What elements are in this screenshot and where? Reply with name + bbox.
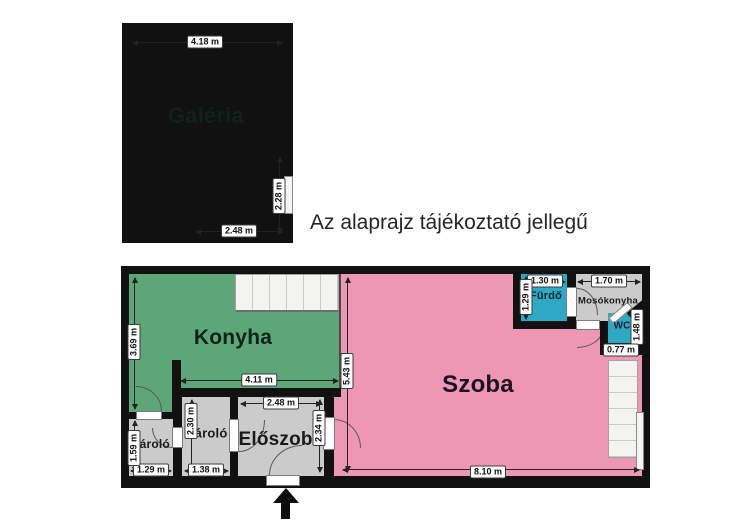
door-furdo-mosokonyha [566,287,577,317]
gallery-inner-wall-horizontal [187,147,293,155]
szoba-window [636,412,644,470]
dim-kitchen-width-label: 4.11 m [241,374,277,387]
dim-storage2-height-label: 2.30 m [185,403,198,439]
dim-room-width-label: 8.10 m [470,466,506,479]
wall-konyha-bottom [172,388,341,397]
wc-label: WC [613,321,630,332]
gallery-inner-wall-stub [187,210,195,235]
floorplan-canvas: 4.18 m 2.28 m 2.48 m Galéria Az alaprajz… [0,0,730,524]
szoba-stairs [608,360,638,458]
gallery-inner-wall-vertical [187,147,195,182]
dim-kitchen-height-label: 3.69 m [128,324,141,360]
szoba-label: Szoba [442,371,514,399]
gallery-outer-wall [122,23,293,243]
gallery-room-label: Galéria [168,103,244,129]
gallery-dim-top-label: 4.18 m [187,36,223,49]
dim-storage2-width-label: 1.38 m [188,464,224,477]
wall-konyha-stub [172,360,181,388]
dim-bath-height-label: 1.29 m [520,279,533,315]
dim-hall-width-label: 2.48 m [263,397,299,410]
konyha-stairs [235,274,339,312]
konyha-label: Konyha [194,326,272,350]
entrance-arrow-icon [273,488,299,503]
dim-wc-width-label: 0.77 m [603,344,639,357]
dim-hall-height-label: 2.34 m [313,410,326,446]
wall-furdo-bottom [513,321,576,329]
dim-laundry-width-label: 1.70 m [591,275,627,288]
dim-wc-height-label: 1.48 m [631,309,644,345]
gallery-dim-right-label: 2.28 m [273,178,286,214]
mosokonyha-label: Mosókonyha [578,296,638,307]
entrance-arrow-shaft [281,502,290,519]
door-entrance [266,475,300,486]
disclaimer-note: Az alaprajz tájékoztató jellegű [310,211,588,235]
door-mosokonyha-szoba [576,320,600,330]
furdo-label: Fürdő [530,290,562,302]
gallery-dim-bottom-label: 2.48 m [221,225,257,238]
dim-room-height-label: 5.43 m [341,353,354,389]
eloszoba-label: Előszoba [238,429,323,451]
door-tarolo1-tarolo2 [172,427,183,448]
door-konyha-tarolo1 [136,411,162,420]
dim-storage1-height-label: 1.59 m [128,430,141,466]
